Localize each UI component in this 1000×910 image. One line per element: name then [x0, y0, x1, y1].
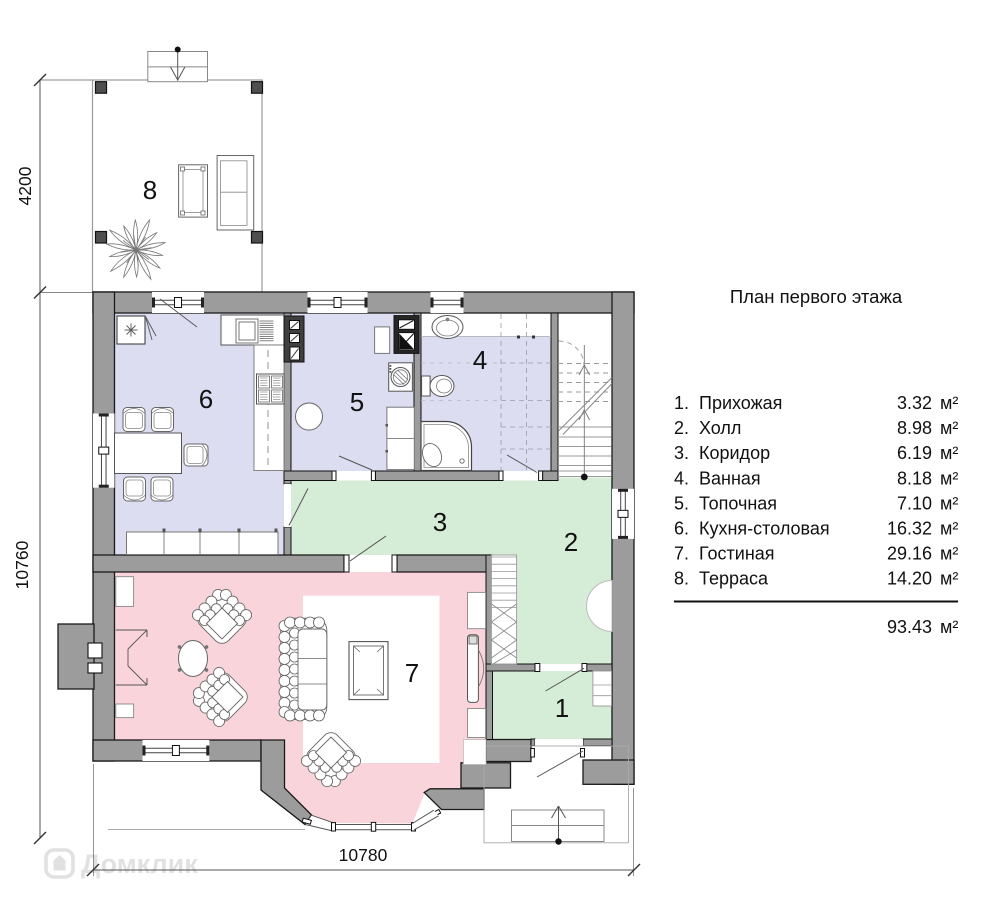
svg-text:м²: м²	[940, 519, 958, 539]
svg-text:5.: 5.	[674, 493, 689, 513]
svg-text:м²: м²	[940, 418, 958, 438]
svg-text:8.98: 8.98	[897, 418, 932, 438]
svg-text:м²: м²	[940, 443, 958, 463]
svg-text:10760: 10760	[12, 540, 32, 589]
svg-text:Ванная: Ванная	[699, 468, 761, 488]
svg-text:Терраса: Терраса	[699, 569, 769, 589]
svg-text:Холл: Холл	[699, 418, 741, 438]
svg-text:10780: 10780	[339, 845, 388, 865]
svg-text:4: 4	[473, 345, 487, 375]
svg-text:м²: м²	[940, 468, 958, 488]
svg-text:Гостиная: Гостиная	[699, 544, 775, 564]
svg-text:4.: 4.	[674, 468, 689, 488]
svg-text:8.: 8.	[674, 569, 689, 589]
svg-text:Домклик: Домклик	[81, 849, 198, 879]
svg-text:2.: 2.	[674, 418, 689, 438]
svg-text:7.: 7.	[674, 544, 689, 564]
svg-text:м²: м²	[940, 493, 958, 513]
svg-text:29.16: 29.16	[887, 544, 932, 564]
svg-text:3: 3	[433, 507, 447, 537]
svg-text:7.10: 7.10	[897, 493, 932, 513]
svg-text:4200: 4200	[15, 166, 35, 205]
svg-text:Коридор: Коридор	[699, 443, 770, 463]
svg-text:2: 2	[564, 527, 578, 557]
svg-text:3.: 3.	[674, 443, 689, 463]
svg-text:6.: 6.	[674, 519, 689, 539]
svg-text:6: 6	[199, 384, 213, 414]
svg-text:Топочная: Топочная	[699, 493, 777, 513]
svg-text:м²: м²	[940, 569, 958, 589]
svg-text:8: 8	[143, 175, 157, 205]
svg-text:м²: м²	[940, 617, 958, 637]
svg-text:3.32: 3.32	[897, 393, 932, 413]
svg-text:93.43: 93.43	[887, 617, 932, 637]
svg-text:м²: м²	[940, 544, 958, 564]
svg-text:1: 1	[555, 693, 569, 723]
svg-text:Прихожая: Прихожая	[699, 393, 782, 413]
svg-text:Кухня-столовая: Кухня-столовая	[699, 519, 830, 539]
svg-text:6.19: 6.19	[897, 443, 932, 463]
svg-text:План первого этажа: План первого этажа	[730, 286, 903, 307]
svg-text:м²: м²	[940, 393, 958, 413]
svg-text:8.18: 8.18	[897, 468, 932, 488]
svg-text:14.20: 14.20	[887, 569, 932, 589]
svg-text:1.: 1.	[674, 393, 689, 413]
svg-text:5: 5	[350, 387, 364, 417]
svg-text:16.32: 16.32	[887, 519, 932, 539]
svg-text:7: 7	[405, 658, 419, 688]
